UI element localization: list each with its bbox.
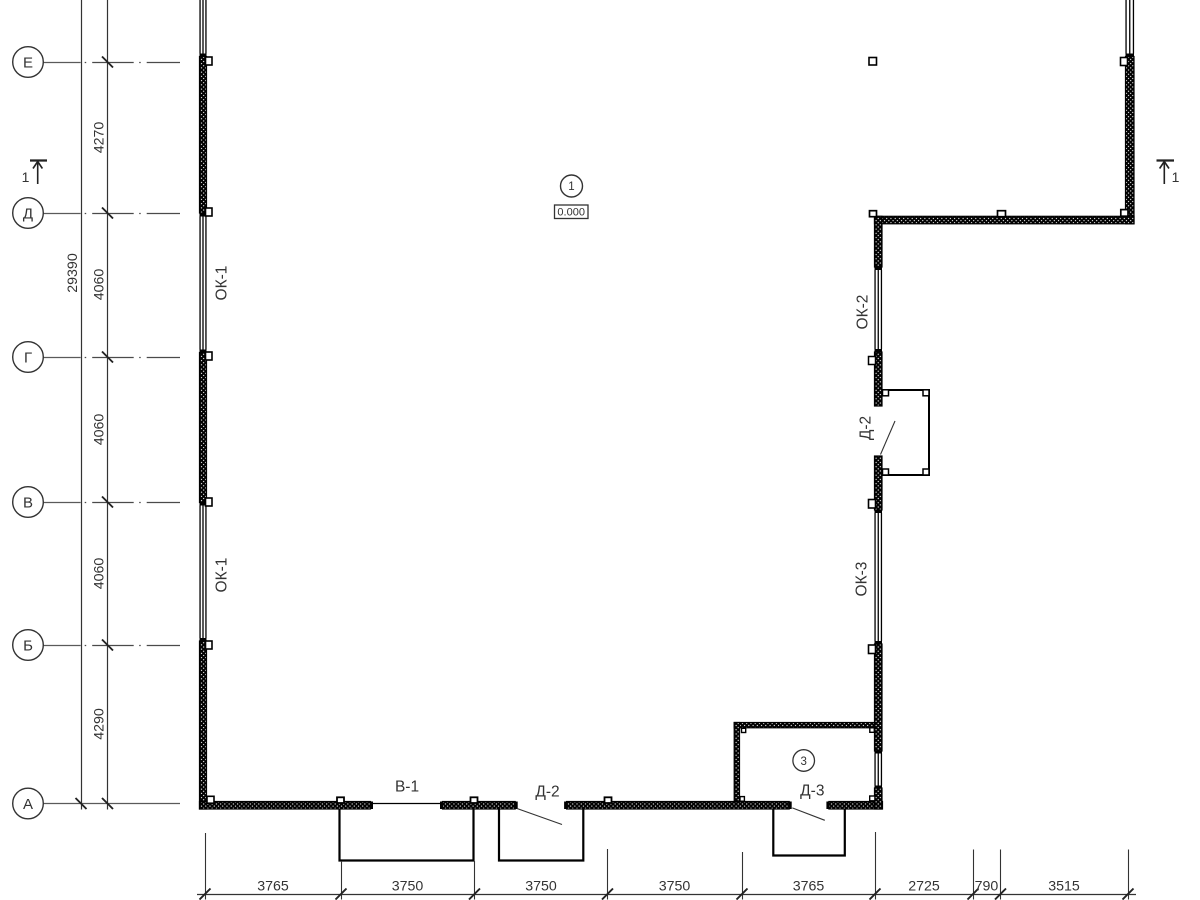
svg-text:1: 1 — [22, 169, 30, 185]
svg-text:0.000: 0.000 — [557, 206, 585, 218]
svg-text:3: 3 — [800, 756, 806, 768]
svg-text:3765: 3765 — [793, 879, 825, 895]
svg-text:3750: 3750 — [659, 879, 691, 895]
svg-text:ОК-1: ОК-1 — [214, 558, 231, 593]
svg-text:4060: 4060 — [91, 269, 107, 301]
svg-text:3750: 3750 — [525, 879, 557, 895]
svg-text:ОК-3: ОК-3 — [854, 562, 871, 597]
svg-text:3515: 3515 — [1048, 879, 1080, 895]
svg-text:4060: 4060 — [91, 558, 107, 590]
svg-text:4060: 4060 — [91, 414, 107, 446]
svg-text:Б: Б — [23, 637, 33, 654]
svg-text:Д-2: Д-2 — [535, 784, 559, 801]
svg-text:1: 1 — [1172, 169, 1180, 185]
svg-text:В: В — [23, 494, 33, 511]
svg-text:3750: 3750 — [392, 879, 424, 895]
svg-text:3765: 3765 — [257, 879, 289, 895]
svg-text:Г: Г — [24, 349, 32, 366]
svg-text:2725: 2725 — [908, 879, 940, 895]
svg-text:4270: 4270 — [91, 122, 107, 154]
svg-text:29390: 29390 — [65, 253, 81, 293]
svg-text:Д: Д — [23, 205, 33, 222]
svg-text:В-1: В-1 — [395, 779, 419, 796]
svg-text:Д-2: Д-2 — [858, 416, 875, 440]
svg-text:790: 790 — [975, 879, 999, 895]
svg-text:А: А — [23, 796, 33, 813]
svg-text:Е: Е — [23, 54, 33, 71]
svg-text:ОК-2: ОК-2 — [855, 295, 872, 330]
svg-text:4290: 4290 — [91, 708, 107, 740]
svg-text:1: 1 — [568, 181, 574, 193]
svg-text:ОК-1: ОК-1 — [214, 266, 231, 301]
svg-text:Д-3: Д-3 — [800, 783, 824, 800]
